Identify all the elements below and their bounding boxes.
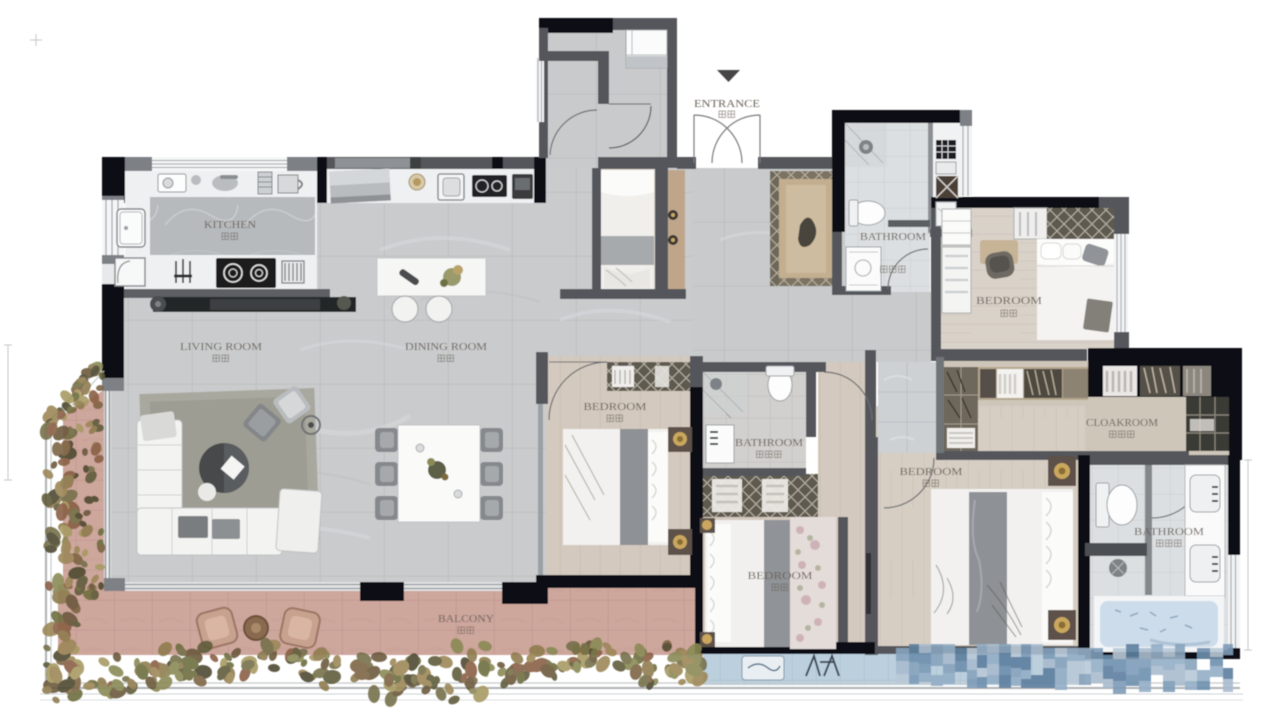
svg-text:BATHROOM: BATHROOM bbox=[860, 232, 927, 243]
svg-text:CLOAKROOM: CLOAKROOM bbox=[1086, 418, 1159, 429]
svg-text:BEDROOM: BEDROOM bbox=[900, 467, 964, 478]
svg-text:KITCHEN: KITCHEN bbox=[204, 220, 256, 231]
svg-text:ENTRANCE: ENTRANCE bbox=[694, 99, 760, 110]
svg-text:BEDROOM: BEDROOM bbox=[748, 571, 814, 582]
svg-text:BEDROOM: BEDROOM bbox=[976, 296, 1043, 307]
svg-text:DINING ROOM: DINING ROOM bbox=[405, 341, 487, 353]
svg-text:BATHROOM: BATHROOM bbox=[1134, 527, 1205, 538]
svg-text:BATHROOM: BATHROOM bbox=[735, 438, 804, 449]
svg-text:BALCONY: BALCONY bbox=[438, 614, 494, 625]
svg-text:LIVING ROOM: LIVING ROOM bbox=[180, 341, 262, 353]
svg-text:BEDROOM: BEDROOM bbox=[584, 402, 648, 413]
